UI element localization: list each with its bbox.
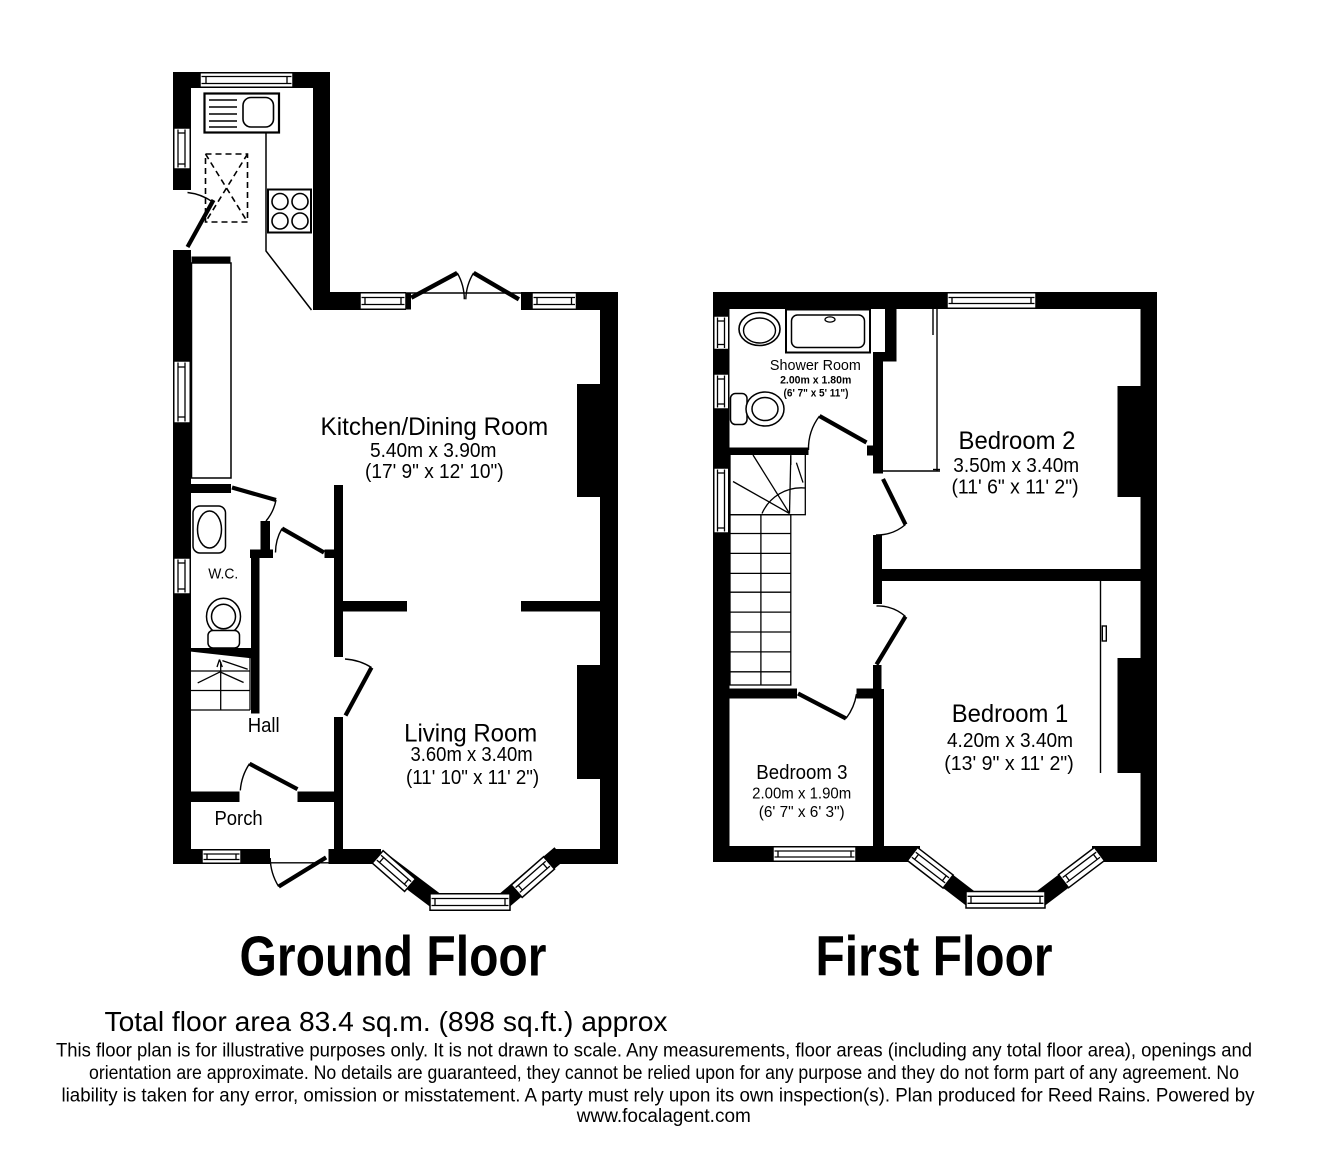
svg-text:Bedroom 2: Bedroom 2 <box>959 427 1076 455</box>
svg-text:5.40m x 3.90m: 5.40m x 3.90m <box>370 440 497 462</box>
svg-text:2.00m x 1.90m: 2.00m x 1.90m <box>752 786 851 803</box>
svg-text:(11' 10" x 11' 2"): (11' 10" x 11' 2") <box>406 767 539 789</box>
svg-text:Kitchen/Dining Room: Kitchen/Dining Room <box>321 413 549 441</box>
svg-text:This floor plan is for illustr: This floor plan is for illustrative purp… <box>56 1041 1252 1062</box>
svg-text:orientation are approximate. N: orientation are approximate. No details … <box>89 1063 1239 1084</box>
svg-text:Total floor area 83.4 sq.m. (8: Total floor area 83.4 sq.m. (898 sq.ft.)… <box>105 1006 668 1037</box>
svg-text:(6' 7" x 5' 11"): (6' 7" x 5' 11") <box>784 388 849 400</box>
svg-text:(11' 6" x 11' 2"): (11' 6" x 11' 2") <box>951 477 1078 499</box>
svg-text:Ground Floor: Ground Floor <box>240 925 547 989</box>
svg-text:www.focalagent.com: www.focalagent.com <box>576 1106 751 1127</box>
svg-text:Hall: Hall <box>248 715 280 737</box>
svg-text:3.60m x 3.40m: 3.60m x 3.40m <box>411 744 533 766</box>
svg-text:(13' 9" x 11' 2"): (13' 9" x 11' 2") <box>944 753 1074 775</box>
svg-text:First Floor: First Floor <box>816 925 1053 989</box>
svg-text:Shower Room: Shower Room <box>770 357 861 374</box>
svg-text:2.00m x 1.80m: 2.00m x 1.80m <box>780 374 851 386</box>
svg-text:Bedroom 3: Bedroom 3 <box>756 762 847 784</box>
svg-text:3.50m x 3.40m: 3.50m x 3.40m <box>953 455 1079 477</box>
svg-text:Porch: Porch <box>215 808 263 830</box>
svg-text:liability is taken for any err: liability is taken for any error, omissi… <box>62 1086 1255 1107</box>
svg-text:4.20m x 3.40m: 4.20m x 3.40m <box>947 730 1073 752</box>
svg-text:(17' 9" x 12' 10"): (17' 9" x 12' 10") <box>365 461 504 483</box>
svg-text:Bedroom 1: Bedroom 1 <box>952 700 1069 728</box>
svg-text:W.C.: W.C. <box>208 567 238 583</box>
svg-text:(6' 7" x 6' 3"): (6' 7" x 6' 3") <box>759 804 845 821</box>
